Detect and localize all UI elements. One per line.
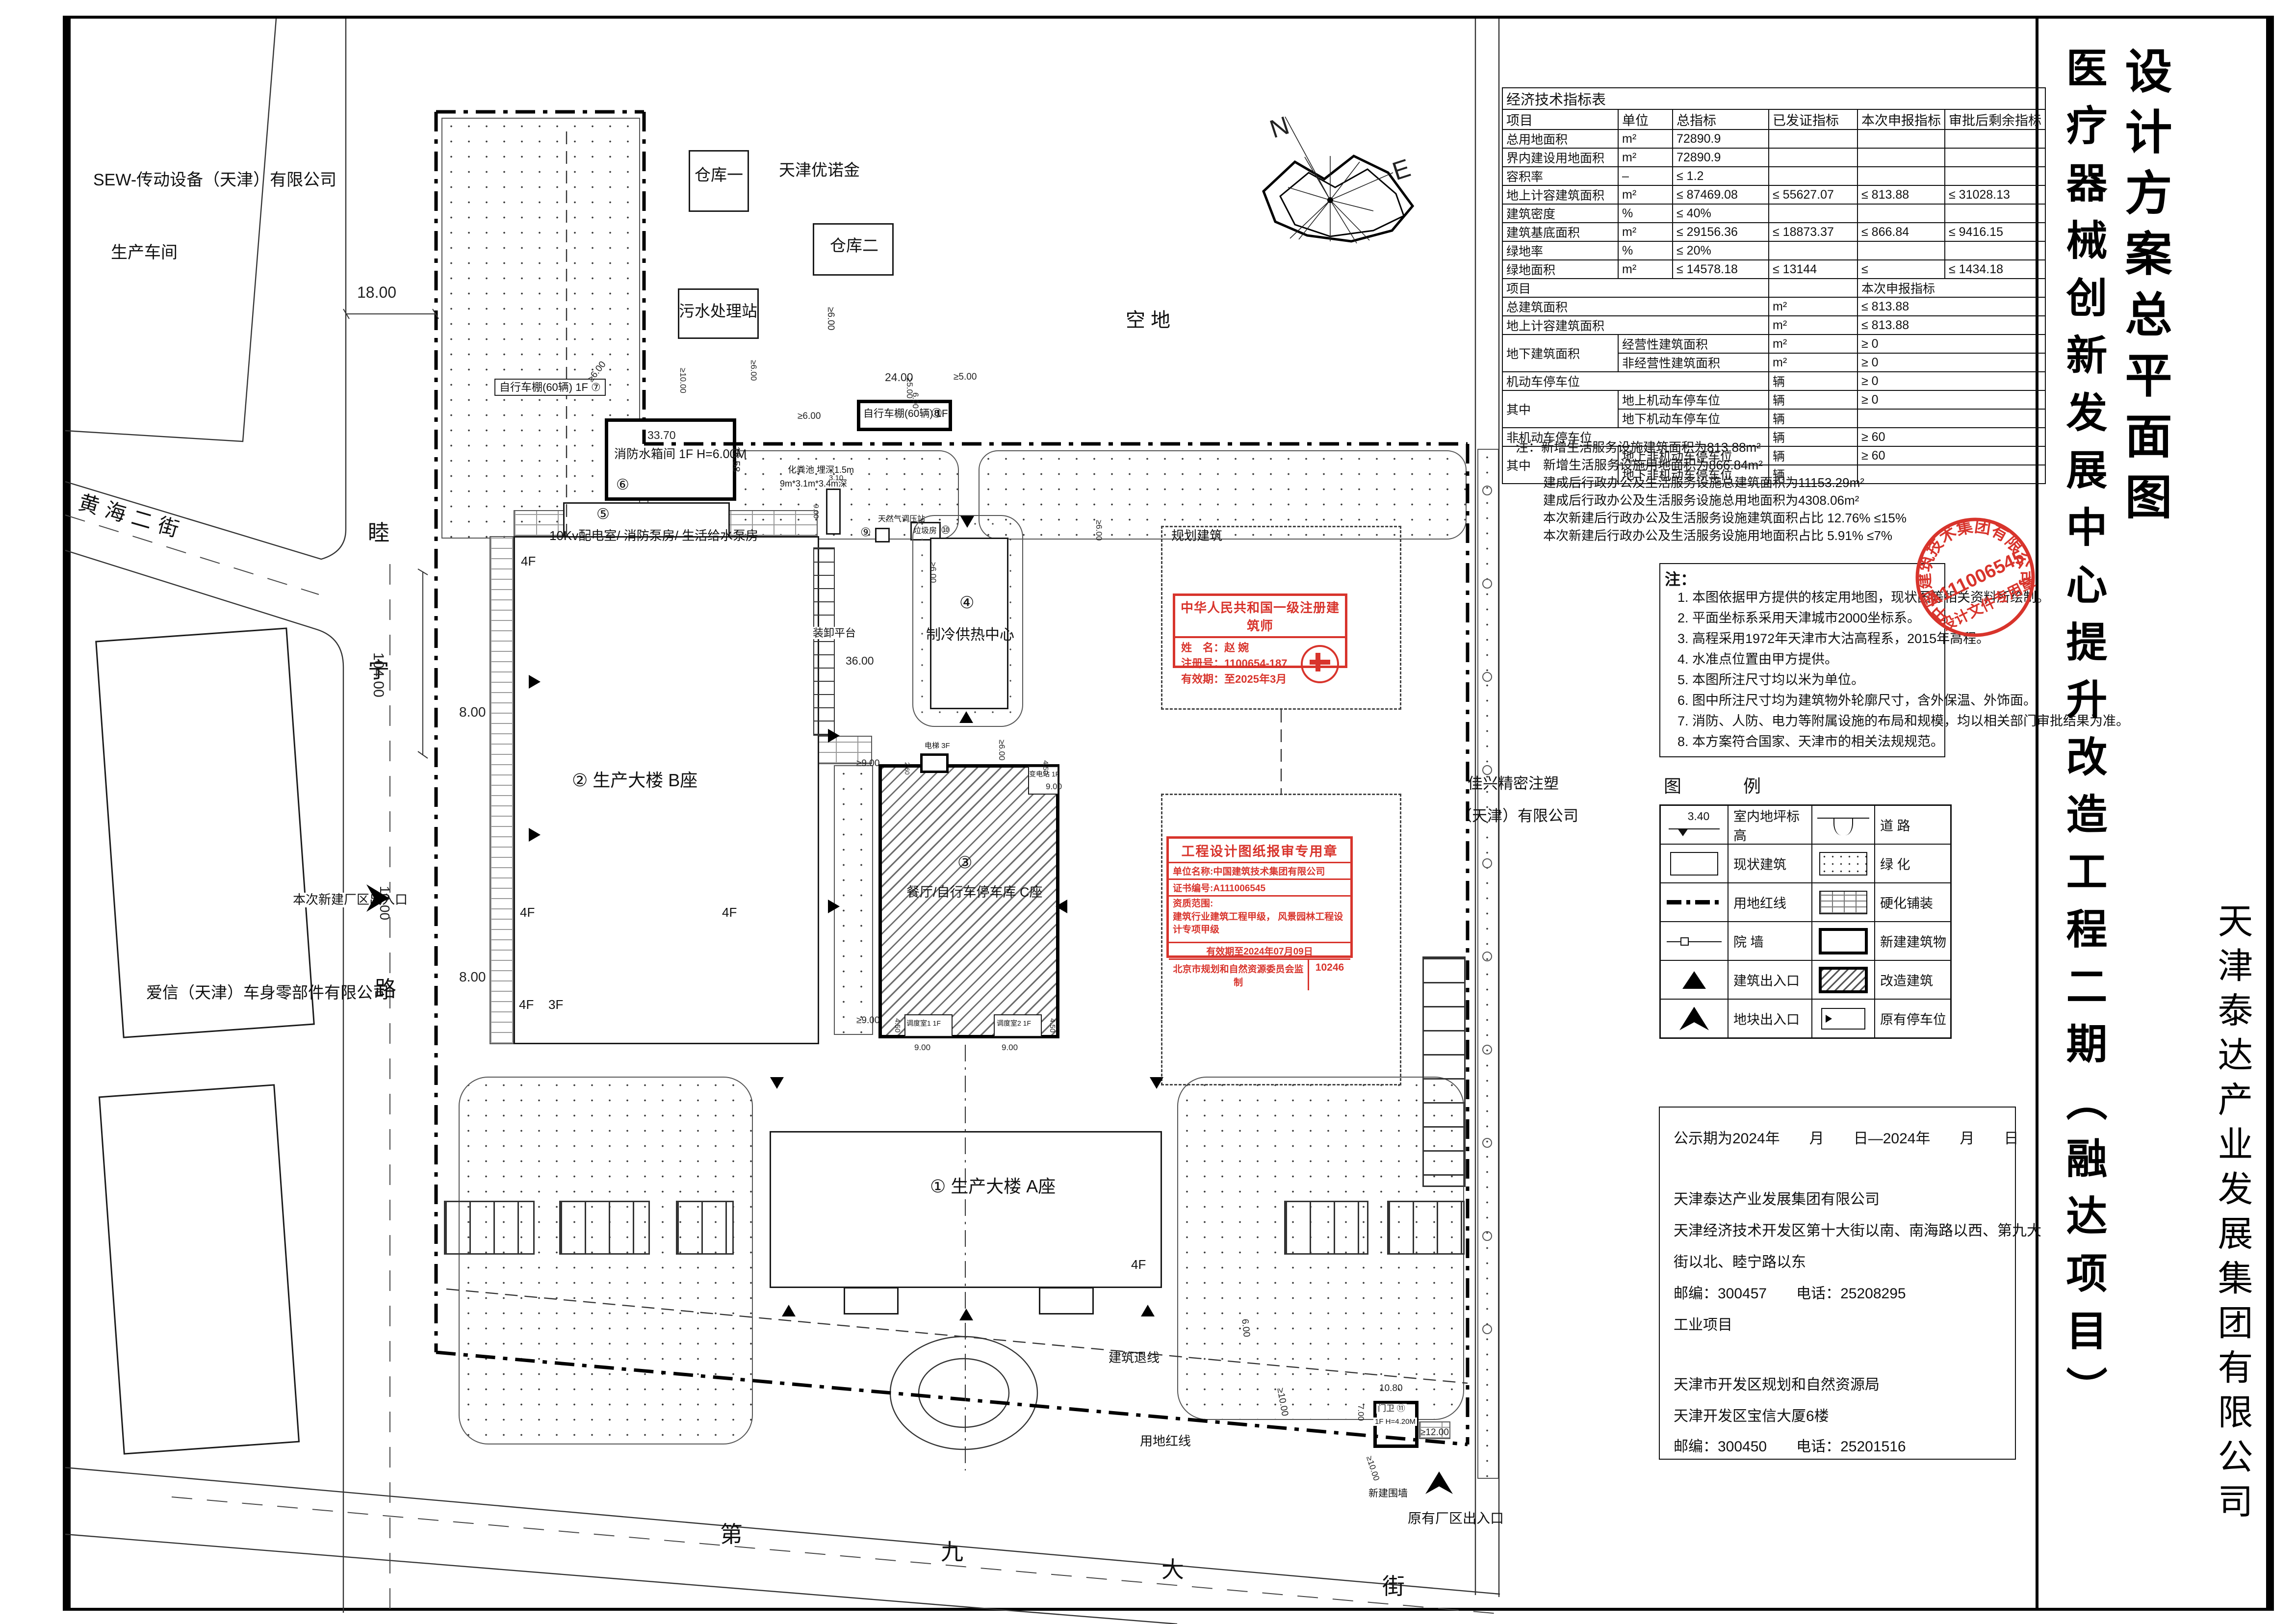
note-item: 6. 图中所注尺寸均为建筑物外轮廓尺寸，含外保温、外饰面。	[1677, 690, 2037, 709]
legend-label: 道 路	[1875, 805, 1951, 844]
table-cell: 地上计容建筑面积	[1502, 185, 1618, 204]
dimension-label: 3.10	[829, 474, 843, 482]
company-sew: SEW-传动设备（天津）有限公司	[93, 171, 336, 190]
dimension-label: ≥6.00	[798, 411, 821, 422]
note-item: 2. 平面坐标系采用天津城市2000坐标系。	[1677, 607, 1920, 626]
notice-line: 天津市开发区规划和自然资源局	[1674, 1372, 1880, 1394]
table-cell: 建筑密度	[1502, 204, 1618, 223]
road-dijiu-char1: 第	[720, 1521, 743, 1547]
table-note-line: 建成后行政办公及生活服务设施总建筑面积为11153.29m²	[1543, 473, 1864, 491]
table-cell: m²	[1618, 148, 1673, 167]
table-cell: 绿地面积	[1502, 260, 1618, 279]
gas-regulator	[875, 528, 890, 542]
architect-seal-icon	[1301, 645, 1339, 683]
table-cell: ≤ 1.2	[1673, 167, 1769, 185]
table-cell: 辆	[1769, 446, 1857, 465]
sewage-label: 污水处理站	[679, 302, 757, 320]
tri-legend-icon	[1660, 960, 1728, 999]
legend-level-value: 3.40	[1688, 810, 1710, 823]
dispatch2-label: 调度室2 1F	[997, 1019, 1031, 1027]
table-cell: m²	[1769, 316, 1857, 335]
table-cell	[1769, 279, 1857, 297]
no10: ⑩	[941, 524, 951, 536]
table-cell	[1857, 148, 1945, 167]
note-item: 5. 本图所注尺寸均以米为单位。	[1677, 669, 1864, 688]
table-note-line: 建成后行政办公及生活服务设施总用地面积为4308.06m²	[1543, 490, 1859, 509]
legend-label: 原有停车位	[1875, 999, 1951, 1038]
review-number: 10246	[1308, 960, 1350, 990]
dimension-label: ≥6.00	[997, 740, 1006, 760]
dimension-label: 9.00	[1046, 782, 1062, 792]
table-cell	[1769, 129, 1857, 148]
dijiu-centerline	[172, 1497, 1499, 1614]
table-cell	[1945, 167, 2045, 185]
dimension-label: ≥9.00	[856, 758, 879, 769]
dimension-label: ≥10.00	[1364, 1455, 1381, 1482]
table-cell	[1945, 241, 2045, 260]
planned-building-label: 规划建筑	[1171, 529, 1222, 543]
building-entrance-arrow	[782, 1305, 796, 1316]
canopy-2	[1039, 1287, 1094, 1315]
table-cell: ≤ 813.88	[1857, 297, 2045, 316]
company-jiaxing-2: （天津）有限公司	[1457, 807, 1578, 825]
table-cell	[1945, 204, 2045, 223]
notice-line: 邮编：300450 电话：25201516	[1674, 1434, 1906, 1456]
green-legend-icon	[1812, 844, 1875, 883]
table-note-line: 新增生活服务设施用地面积为866.84m²	[1543, 455, 1763, 473]
review-issuer: 北京市规划和自然资源委员会监制	[1169, 960, 1308, 990]
table-cell: 本次申报指标	[1857, 109, 1945, 129]
legend-label: 用地红线	[1728, 883, 1812, 922]
wall-legend-icon	[1660, 922, 1728, 960]
aisin-plot-1	[95, 627, 315, 1038]
table-cell: 72890.9	[1673, 148, 1769, 167]
legend-label: 新建建筑物	[1875, 922, 1951, 960]
company-younuojin: 天津优诺金	[779, 161, 860, 180]
frame-right	[2266, 16, 2274, 1611]
table-cell: ≤ 40%	[1673, 204, 1769, 223]
building-entrance-arrow	[959, 1309, 973, 1320]
project-title: 医疗器械创新发展中心提升改造工程二期（融达项目）	[2054, 47, 2114, 1424]
table-row: 总用地面积m²72890.9	[1502, 129, 2045, 148]
brickic-legend-icon	[1812, 883, 1875, 922]
review-cert: 证书编号:A111006545	[1169, 880, 1350, 897]
owner-company: 天津泰达产业发展集团有限公司	[2206, 902, 2258, 1527]
paved-area	[490, 536, 514, 1044]
table-cell: m²	[1769, 353, 1857, 372]
table-cell: ≤ 813.88	[1857, 185, 1945, 204]
paving-legend-swatch	[1819, 891, 1867, 914]
circular-drive-inner	[919, 1359, 1009, 1427]
table-cell: 已发证指标	[1769, 109, 1857, 129]
table-row: 其中地上机动车停车位辆≥ 0	[1502, 390, 2045, 409]
table-cell: ≤ 813.88	[1857, 316, 2045, 335]
table-cell: ≤ 87469.08	[1673, 185, 1769, 204]
company-sew-workshop: 生产车间	[111, 243, 178, 262]
svg-text:N: N	[1266, 111, 1293, 144]
table-cell: 地上机动车停车位	[1618, 390, 1769, 409]
note-item: 3. 高程采用1972年天津市大沽高程系，2015年高程。	[1677, 628, 1989, 647]
table-cell: m²	[1769, 297, 1857, 316]
table-cell: 总用地面积	[1502, 129, 1618, 148]
architect-reg: 注册号：1100654-187	[1181, 656, 1301, 671]
building-c-label: 餐厅/自行车停车库 C座	[906, 885, 1043, 900]
table-cell: 地下机动车停车位	[1618, 409, 1769, 428]
no5: ⑤	[596, 506, 610, 523]
dimension-label: 4.50	[893, 1018, 902, 1032]
aisin-plot-2	[99, 1084, 300, 1454]
new-wall-label: 新建围墙	[1368, 1488, 1408, 1499]
notice-line: 天津经济技术开发区第十大街以南、南海路以西、第九大	[1674, 1218, 2041, 1240]
dimension-label: 4.50	[1048, 1018, 1057, 1032]
table-cell	[1857, 167, 1945, 185]
reno-legend-icon	[1812, 960, 1875, 999]
table-cell: 非经营性建筑面积	[1618, 353, 1769, 372]
review-valid: 有效期至2024年07月09日	[1169, 943, 1350, 960]
table-cell	[1769, 241, 1857, 260]
building-a-label: ① 生产大楼 A座	[930, 1176, 1056, 1196]
dimension-label: ≥6.00	[928, 562, 938, 583]
table-row: 界内建设用地面积m²72890.9	[1502, 148, 2045, 167]
elevator-label: 电梯 3F	[923, 742, 952, 750]
building-a	[770, 1131, 1162, 1288]
table-row: 建筑基底面积m²≤ 29156.36≤ 18873.37≤ 866.84≤ 94…	[1502, 223, 2045, 241]
note-item: 4. 水准点位置由甲方提供。	[1677, 648, 1838, 668]
company-aisin: 爱信（天津）车身零部件有限公司	[146, 983, 389, 1002]
table-cell: 本次申报指标	[1857, 279, 2045, 297]
parking-stalls	[1422, 956, 1466, 1187]
table-cell: 72890.9	[1673, 129, 1769, 148]
table-cell: ≤ 13144	[1769, 260, 1857, 279]
table-cell	[1857, 204, 1945, 223]
table-cell: 辆	[1769, 390, 1857, 409]
table-cell: –	[1618, 167, 1673, 185]
pump-rooms-label: 10Kv配电室/ 消防泵房/ 生活给水泵房	[549, 529, 758, 543]
dimension-label: 15.58	[730, 446, 742, 472]
table-row: 建筑密度%≤ 40%	[1502, 204, 2045, 223]
legend: 3.40室内地坪标高道 路现状建筑绿 化用地红线硬化铺装院 墙新建建筑物建筑出入…	[1659, 804, 1952, 1039]
indicator-table-title: 经济技术指标表	[1502, 88, 2045, 109]
dimension-label: ≥9.00	[856, 1015, 879, 1026]
parking-stalls	[676, 1201, 734, 1255]
warehouse-2-label: 仓库二	[830, 236, 878, 255]
dimension-label: 8.00	[459, 969, 486, 985]
table-cell: 辆	[1769, 428, 1857, 446]
table-cell: 建筑基底面积	[1502, 223, 1618, 241]
building-b-label: ② 生产大楼 B座	[572, 770, 697, 790]
no9: ⑨	[860, 526, 871, 540]
firetank-label: 消防水箱间 1F H=6.00M	[614, 447, 747, 462]
road-dijiu-char3: 大	[1161, 1557, 1184, 1583]
dimension-label: 7.00	[1356, 1405, 1366, 1421]
huanghai-centerline	[65, 515, 319, 594]
parking-stalls	[1387, 1201, 1465, 1255]
table-cell: 地下建筑面积	[1502, 335, 1618, 372]
canopy-1	[844, 1287, 899, 1315]
table-row: 绿地率%≤ 20%	[1502, 241, 2045, 260]
dimension-label: ≥12.00	[1420, 1427, 1449, 1438]
economic-indicator-table: 经济技术指标表项目单位总指标已发证指标本次申报指标审批后剩余指标总用地面积m²7…	[1502, 87, 2046, 484]
muning-west-curb-north	[65, 19, 346, 559]
dimension-label: ≥6.00	[748, 360, 758, 381]
parking-stalls	[444, 1201, 535, 1255]
table-cell: ≤ 14578.18	[1673, 260, 1769, 279]
dim-18-line	[343, 309, 439, 319]
table-cell: ≥ 0	[1857, 372, 2045, 390]
notice-line: 邮编：300457 电话：25208295	[1674, 1281, 1906, 1303]
frame-top	[63, 16, 2274, 19]
legend-label: 改造建筑	[1875, 960, 1951, 999]
table-note-line: 本次新建后行政办公及生活服务设施建筑面积占比 12.76% ≤15%	[1543, 508, 1907, 526]
note-item: 1. 本图依据甲方提供的核定用地图，现状图等相关资料所绘制。	[1677, 587, 2050, 606]
no4: ④	[959, 593, 974, 613]
notice-line: 工业项目	[1674, 1313, 1732, 1334]
chiller-plant	[930, 538, 1008, 709]
legend-label: 地块出入口	[1728, 999, 1812, 1038]
dimension-label: 4.50	[1041, 760, 1050, 774]
greenery-area	[834, 765, 873, 1035]
table-cell: ≤ 55627.07	[1769, 185, 1857, 204]
table-cell	[1945, 148, 2045, 167]
table-cell: ≤ 20%	[1673, 241, 1769, 260]
bikeshed7-label: 自行车棚(60辆) 1F ⑦	[494, 379, 606, 396]
svg-text:E: E	[1389, 154, 1414, 186]
elevator	[920, 753, 949, 773]
dimension-label: 36.00	[846, 654, 874, 667]
drawing-title: 设计方案总平面图	[2110, 47, 2178, 533]
dimension-label: ≥10.00	[678, 368, 688, 393]
table-cell	[1769, 204, 1857, 223]
circular-drive-outer	[890, 1337, 1037, 1449]
table-cell: ≥ 60	[1857, 428, 2045, 446]
table-cell: ≤ 29156.36	[1673, 223, 1769, 241]
building-entrance-arrow	[1141, 1305, 1155, 1316]
no8: ⑧	[931, 406, 942, 421]
greenery-area	[1477, 449, 1499, 1479]
review-unit: 单位名称:中国建筑技术集团有限公司	[1169, 863, 1350, 880]
table-cell	[1769, 167, 1857, 185]
floors-4f-4: 4F	[519, 998, 534, 1012]
table-cell: m²	[1618, 129, 1673, 148]
notice-line: 公示期为2024年 月 日—2024年 月 日	[1674, 1126, 2018, 1148]
dijiu-north-curb	[65, 1468, 1500, 1594]
old-entrance-label: 原有厂区出入口	[1408, 1511, 1504, 1526]
road-muning-char1: 睦	[368, 521, 389, 546]
table-cell: 绿地率	[1502, 241, 1618, 260]
table-cell: ≤	[1857, 260, 1945, 279]
table-row: 项目本次申报指标	[1502, 279, 2045, 297]
table-cell: 项目	[1502, 109, 1618, 129]
no3: ③	[957, 853, 972, 873]
gas-label: 天然气调压站	[878, 515, 925, 524]
loading-dock	[813, 547, 835, 736]
table-cell: 项目	[1502, 279, 1769, 297]
dimension-label: 18.00	[357, 284, 396, 302]
table-cell: m²	[1618, 260, 1673, 279]
table-cell: ≥ 0	[1857, 353, 2045, 372]
architect-valid: 有效期：至2025年3月	[1181, 671, 1301, 687]
redline-legend-icon	[1660, 883, 1728, 922]
table-row: 地上计容建筑面积m²≤ 813.88	[1502, 316, 2045, 335]
table-cell: 容积率	[1502, 167, 1618, 185]
site-entrance-arrow	[1425, 1471, 1453, 1494]
table-cell: ≤ 1434.18	[1945, 260, 2045, 279]
road-huanghai: 黄海二街	[76, 490, 188, 543]
table-cell: %	[1618, 204, 1673, 223]
floors-3f: 3F	[548, 998, 563, 1012]
table-cell: 辆	[1769, 372, 1857, 390]
note-item: 8. 本方案符合国家、天津市的相关法规规范。	[1677, 731, 1944, 750]
chev-legend-icon	[1660, 999, 1728, 1038]
dimension-label: 104.00	[370, 652, 387, 697]
dimension-label: 2.60	[903, 762, 910, 774]
table-note-line: 注：新增生活服务设施建筑面积为813.88m²	[1516, 438, 1761, 456]
chiller-label: 制冷供热中心	[926, 627, 1014, 644]
company-jiaxing-1: 佳兴精密注塑	[1468, 775, 1559, 793]
road-legend-icon	[1812, 805, 1875, 844]
greenery-area	[459, 1077, 753, 1444]
table-cell	[1857, 409, 2045, 428]
floors-4f-3: 4F	[722, 905, 737, 920]
parking-stalls	[1284, 1201, 1368, 1255]
dimension-label: ≥6.00	[825, 307, 836, 330]
table-cell: ≤ 9416.15	[1945, 223, 2045, 241]
table-cell: 单位	[1618, 109, 1673, 129]
table-cell: m²	[1769, 335, 1857, 353]
dimension-label: 8.00	[459, 704, 486, 720]
dimension-label: 33.70	[647, 429, 676, 441]
dimension-label: 10.80	[1379, 1383, 1403, 1394]
table-cell: %	[1618, 241, 1673, 260]
floors-4f-2: 4F	[520, 905, 535, 920]
legend-title: 图 例	[1664, 776, 1770, 796]
table-row: 地下建筑面积经营性建筑面积m²≥ 0	[1502, 335, 2045, 353]
septic-tank	[826, 489, 841, 535]
dispatch1-label: 调度室1 1F	[906, 1019, 941, 1027]
table-cell: ≥ 0	[1857, 335, 2045, 353]
floors-4f-1: 4F	[521, 554, 536, 569]
table-cell: 经营性建筑面积	[1618, 335, 1769, 353]
dimension-label: ≥6.00	[1094, 520, 1104, 541]
site-plan-sheet: N E SEW-传动设备（天津）有限公司生产车间黄海二街睦宁路爱信（天津）车身零…	[0, 0, 2296, 1624]
dimension-label: ≥5.00	[954, 372, 977, 383]
table-cell	[1769, 148, 1857, 167]
table-cell: 地上计容建筑面积	[1502, 316, 1769, 335]
table-cell: 界内建设用地面积	[1502, 148, 1618, 167]
review-scope: 资质范围: 建筑行业建筑工程甲级， 风景园林工程设计专项甲级	[1169, 897, 1350, 943]
table-cell: 辆	[1769, 409, 1857, 428]
notice-line: 天津开发区宝信大厦6楼	[1674, 1404, 1829, 1425]
loading-platform-label: 装卸平台	[811, 627, 857, 639]
building-entrance-arrow	[770, 1077, 784, 1089]
legend-label: 室内地坪标高	[1728, 805, 1812, 844]
sew-parcel-line	[65, 19, 276, 441]
table-cell: 审批后剩余指标	[1945, 109, 2045, 129]
table-cell: ≥ 60	[1857, 446, 2045, 465]
architect-stamp-title: 中华人民共和国一级注册建筑师	[1175, 596, 1345, 638]
frame-bottom	[63, 1608, 2274, 1611]
septic-label1: 化粪池 埋深1.5m	[788, 465, 854, 475]
table-row: 绿地面积m²≤ 14578.18≤ 13144≤≤ 1434.18	[1502, 260, 2045, 279]
dimension-label: 9.00	[1002, 1043, 1018, 1053]
architect-name: 姓 名：赵 婉	[1181, 640, 1301, 656]
newb-legend-icon	[1812, 922, 1875, 960]
dimension-label: 9.00	[812, 504, 820, 518]
table-cell	[1945, 129, 2045, 148]
table-cell	[1857, 129, 1945, 148]
park-legend-icon	[1812, 999, 1875, 1038]
dimension-label: 6.00	[1239, 1318, 1252, 1338]
architect-stamp: 中华人民共和国一级注册建筑师 姓 名：赵 婉 注册号：1100654-187 有…	[1173, 593, 1347, 668]
table-cell: ≤ 31028.13	[1945, 185, 2045, 204]
dimension-label: 6.00	[910, 392, 920, 409]
table-row: 总建筑面积m²≤ 813.88	[1502, 297, 2045, 316]
legend-label: 建筑出入口	[1728, 960, 1812, 999]
table-cell: ≥ 0	[1857, 390, 2045, 409]
building-c	[878, 764, 1059, 1038]
table-cell: m²	[1618, 185, 1673, 204]
redline-label: 用地红线	[1140, 1434, 1191, 1449]
notice-line: 街以北、睦宁路以东	[1674, 1250, 1806, 1271]
table-cell: m²	[1618, 223, 1673, 241]
rect-legend-icon	[1660, 844, 1728, 883]
legend-label: 绿 化	[1875, 844, 1951, 883]
table-cell: ≤ 866.84	[1857, 223, 1945, 241]
vacant-land-label: 空 地	[1126, 309, 1170, 332]
table-row: 容积率–≤ 1.2	[1502, 167, 2045, 185]
table-cell: 机动车停车位	[1502, 372, 1769, 390]
road-dijiu-char4: 街	[1382, 1573, 1405, 1599]
floors-4f-5: 4F	[1131, 1258, 1146, 1272]
level-legend-icon: 3.40	[1660, 805, 1728, 844]
legend-label: 现状建筑	[1728, 844, 1812, 883]
road-dijiu-char2: 九	[941, 1539, 963, 1565]
frame-left	[63, 16, 71, 1611]
notice-line: 天津泰达产业发展集团有限公司	[1674, 1187, 1880, 1209]
review-stamp-title: 工程设计图纸报审专用章	[1169, 839, 1350, 863]
review-stamp: 工程设计图纸报审专用章 单位名称:中国建筑技术集团有限公司 证书编号:A1110…	[1166, 836, 1353, 958]
table-cell: 其中	[1502, 390, 1618, 428]
dim-104-line	[418, 569, 428, 758]
table-cell	[1857, 465, 2045, 484]
trash-label: 垃圾房	[913, 527, 937, 536]
table-row: 机动车停车位辆≥ 0	[1502, 372, 2045, 390]
legend-label: 院 墙	[1728, 922, 1812, 960]
dimension-label: 9.00	[914, 1043, 930, 1053]
gatehouse-label: 门卫 ⑪	[1376, 1404, 1407, 1414]
table-row: 地上计容建筑面积m²≤ 87469.08≤ 55627.07≤ 813.88≤ …	[1502, 185, 2045, 204]
north-compass: N E	[1264, 111, 1414, 243]
legend-label: 硬化铺装	[1875, 883, 1951, 922]
table-cell: ≤ 18873.37	[1769, 223, 1857, 241]
parking-stalls	[559, 1201, 650, 1255]
table-row: 项目单位总指标已发证指标本次申报指标审批后剩余指标	[1502, 109, 2045, 129]
table-note-line: 本次新建后行政办公及生活服务设施用地面积占比 5.91% ≤7%	[1543, 526, 1892, 544]
warehouse-1-label: 仓库一	[695, 166, 743, 184]
g atehouse-label2: 1F H=4.20M	[1373, 1418, 1417, 1426]
table-cell: 总指标	[1673, 109, 1769, 129]
setback-line-label: 建筑退线	[1109, 1351, 1160, 1366]
no6: ⑥	[616, 477, 629, 494]
table-cell: 总建筑面积	[1502, 297, 1769, 316]
table-cell	[1857, 241, 1945, 260]
